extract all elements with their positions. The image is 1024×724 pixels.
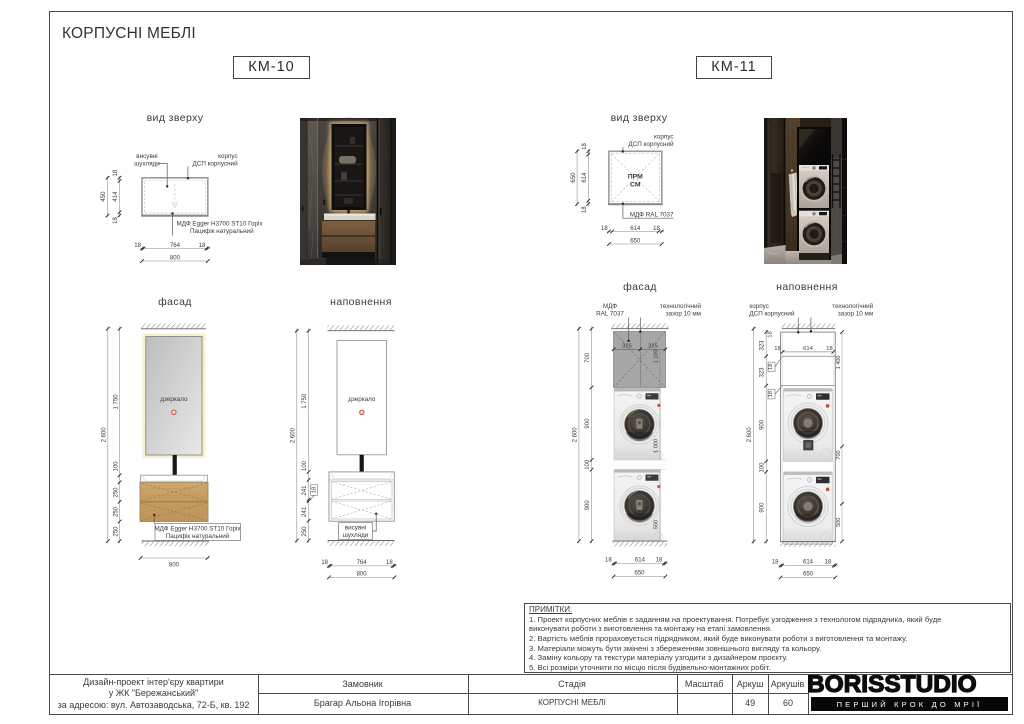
svg-text:Пацифік натуральний: Пацифік натуральний: [190, 227, 254, 235]
svg-text:700: 700: [585, 352, 591, 363]
svg-text:шухляди: шухляди: [134, 161, 160, 168]
svg-text:450: 450: [101, 191, 107, 202]
svg-text:2 600: 2 600: [290, 427, 296, 443]
svg-text:Пацифік натуральний: Пацифік натуральний: [166, 532, 230, 540]
svg-text:дзеркало: дзеркало: [348, 396, 376, 403]
svg-text:корпус: корпус: [749, 303, 768, 310]
svg-text:650: 650: [571, 172, 577, 183]
svg-text:1 750: 1 750: [302, 393, 308, 409]
svg-text:висувні: висувні: [345, 524, 366, 532]
svg-text:323: 323: [760, 367, 766, 378]
svg-text:МДФ: МДФ: [603, 303, 617, 310]
svg-text:2 600: 2 600: [102, 427, 108, 443]
svg-text:250: 250: [302, 526, 308, 537]
svg-text:800: 800: [169, 563, 180, 569]
svg-text:250: 250: [113, 487, 119, 498]
svg-text:висувні: висувні: [136, 152, 157, 160]
svg-text:325: 325: [622, 343, 632, 349]
svg-text:МДФ Egger H3700 ST10 Горіх: МДФ Egger H3700 ST10 Горіх: [177, 220, 264, 228]
svg-text:614: 614: [803, 560, 814, 566]
svg-text:зазор 10 мм: зазор 10 мм: [666, 311, 701, 318]
svg-text:100: 100: [585, 459, 591, 470]
svg-text:дзеркало: дзеркало: [160, 396, 188, 403]
svg-text:МДФ RAL 7037: МДФ RAL 7037: [630, 212, 674, 219]
svg-text:800: 800: [170, 256, 181, 262]
svg-text:18: 18: [199, 243, 206, 249]
svg-text:18: 18: [582, 206, 588, 213]
svg-text:18: 18: [134, 243, 141, 249]
svg-text:414: 414: [113, 191, 119, 202]
svg-text:ПРМ: ПРМ: [628, 174, 643, 181]
svg-text:900: 900: [585, 500, 591, 511]
svg-text:СМ: СМ: [630, 182, 641, 189]
svg-text:ДСП корпусний: ДСП корпусний: [749, 310, 795, 318]
svg-text:зазор 10 мм: зазор 10 мм: [838, 311, 873, 318]
svg-text:18: 18: [768, 364, 774, 370]
svg-text:1 400: 1 400: [836, 356, 842, 370]
svg-text:1 100: 1 100: [654, 350, 660, 364]
svg-text:18: 18: [768, 331, 774, 337]
svg-text:1 000: 1 000: [653, 439, 659, 453]
svg-text:технологічний: технологічний: [660, 302, 701, 310]
svg-text:18: 18: [772, 560, 779, 566]
svg-text:250: 250: [113, 506, 119, 517]
svg-text:614: 614: [803, 346, 813, 352]
svg-text:18: 18: [113, 169, 119, 176]
svg-text:650: 650: [803, 572, 814, 578]
svg-text:100: 100: [302, 460, 308, 471]
svg-text:18: 18: [826, 346, 832, 352]
svg-text:100: 100: [760, 462, 766, 473]
svg-text:614: 614: [635, 558, 646, 564]
svg-text:18: 18: [582, 143, 588, 150]
svg-text:500: 500: [836, 518, 842, 527]
svg-text:500: 500: [653, 520, 659, 529]
svg-text:технологічний: технологічний: [832, 302, 873, 310]
svg-text:800: 800: [357, 571, 368, 577]
svg-text:614: 614: [582, 172, 588, 183]
svg-text:323: 323: [760, 340, 766, 351]
svg-text:ДСП корпусний: ДСП корпусний: [628, 140, 674, 148]
svg-text:764: 764: [170, 243, 181, 249]
svg-text:18: 18: [768, 391, 774, 397]
svg-text:18: 18: [825, 560, 832, 566]
svg-text:2 600: 2 600: [572, 427, 578, 443]
svg-text:корпус: корпус: [654, 134, 673, 141]
svg-text:614: 614: [630, 226, 641, 232]
svg-text:ДСП корпусний: ДСП корпусний: [193, 160, 239, 168]
svg-text:18: 18: [653, 226, 660, 232]
svg-text:650: 650: [634, 571, 645, 577]
svg-text:900: 900: [585, 418, 591, 429]
svg-text:18: 18: [656, 558, 663, 564]
svg-text:18: 18: [386, 560, 393, 566]
svg-text:900: 900: [760, 502, 766, 513]
svg-text:2 600: 2 600: [747, 427, 753, 443]
svg-text:325: 325: [648, 343, 658, 349]
svg-text:764: 764: [357, 560, 368, 566]
svg-text:18: 18: [113, 217, 119, 224]
svg-text:241: 241: [302, 506, 308, 517]
svg-text:700: 700: [836, 450, 842, 459]
svg-text:корпус: корпус: [218, 153, 237, 160]
svg-text:250: 250: [113, 526, 119, 537]
svg-text:18: 18: [312, 487, 318, 493]
svg-text:1 750: 1 750: [113, 394, 119, 410]
svg-text:241: 241: [302, 485, 308, 496]
svg-text:18: 18: [605, 558, 612, 564]
svg-text:RAL 7037: RAL 7037: [596, 311, 624, 318]
svg-text:МДФ Egger H3700 ST10 Горіх: МДФ Egger H3700 ST10 Горіх: [154, 525, 241, 533]
svg-text:18: 18: [601, 226, 608, 232]
svg-text:18: 18: [774, 346, 780, 352]
svg-text:шухляди: шухляди: [343, 532, 369, 539]
svg-text:650: 650: [630, 239, 641, 245]
svg-text:100: 100: [113, 461, 119, 472]
svg-text:18: 18: [321, 560, 328, 566]
svg-text:900: 900: [760, 419, 766, 430]
